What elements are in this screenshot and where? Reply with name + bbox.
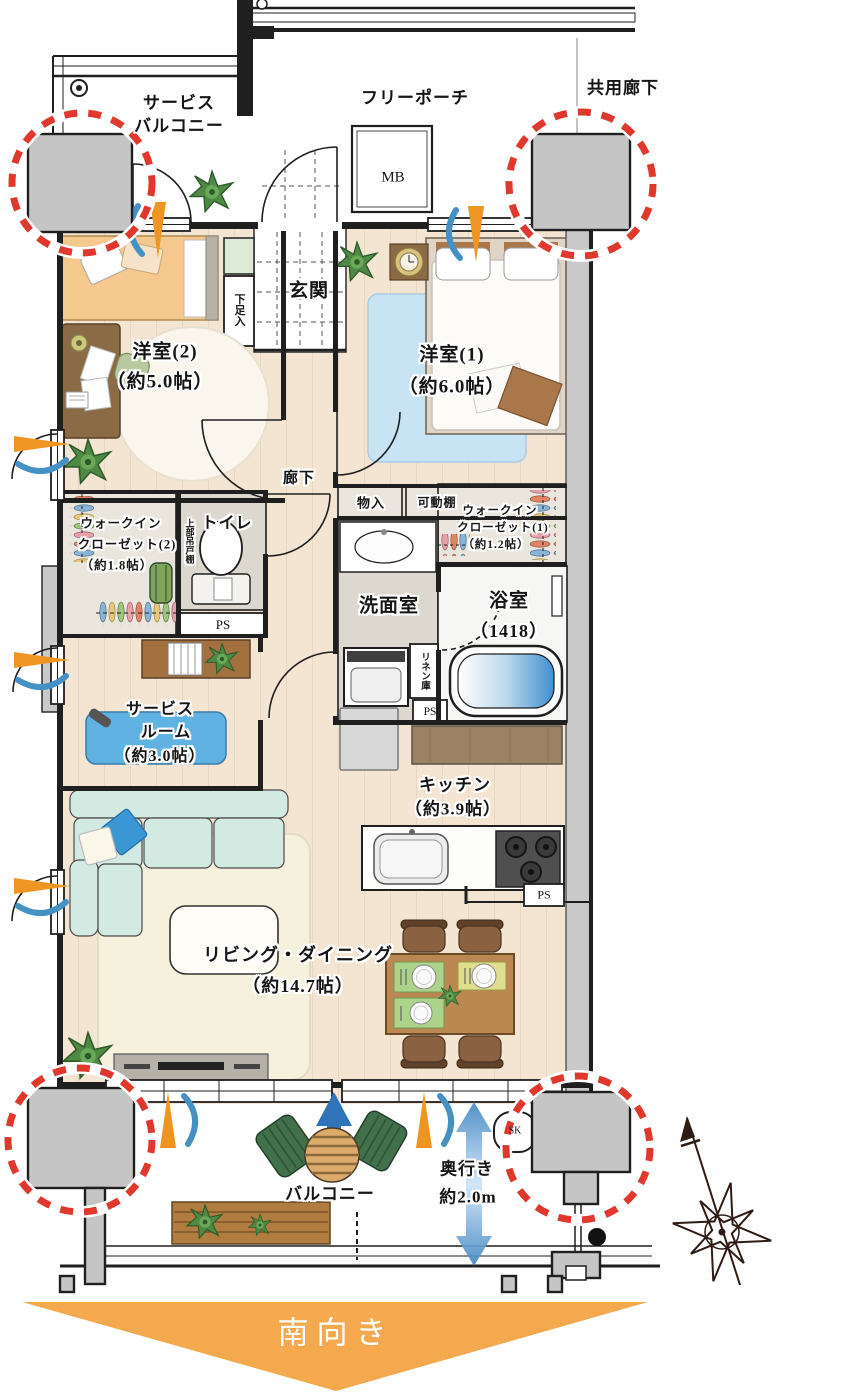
- balcony-label: バルコニー: [285, 1180, 375, 1205]
- washing-machine: [344, 648, 408, 706]
- ps-label: PS: [216, 617, 230, 633]
- shower-shelf: [552, 576, 562, 616]
- living-dining-label: リビング・ダイニング: [203, 941, 393, 967]
- balcony-depth-label: 奥行き: [440, 1155, 494, 1180]
- right-wall-band: [566, 228, 590, 1104]
- living-dining-size-label: （約14.7帖）: [242, 972, 354, 998]
- pillar: [532, 1092, 630, 1172]
- porch-side-wall: [237, 0, 253, 116]
- compass-icon: [673, 1116, 771, 1285]
- common-corridor-label: 共用廊下: [587, 74, 659, 99]
- vanity: [340, 522, 436, 572]
- movable-shelf-label: 可動棚: [417, 494, 456, 511]
- pillar: [28, 1088, 134, 1188]
- bathroom-label: 浴室: [489, 586, 529, 613]
- service-room-label: サービス: [126, 695, 194, 719]
- corridor-label: 廊下: [283, 467, 315, 488]
- free-porch-label: フリーポーチ: [361, 84, 469, 109]
- service-balcony-label: サービス: [143, 89, 215, 114]
- linen-cabinet-label: リネン庫: [417, 652, 431, 690]
- entrance-label: 玄関: [289, 276, 329, 303]
- wic2-label: クローゼット(2): [78, 534, 177, 553]
- shoe-cabinet-label: 下足入: [231, 294, 247, 327]
- bathtub: [450, 646, 562, 716]
- pillar: [28, 134, 132, 232]
- south-direction-label: 南向き: [278, 1308, 395, 1353]
- wic1-size-label: （約1.2帖）: [462, 536, 529, 552]
- bedroom1-size-label: （約6.0帖）: [399, 372, 506, 399]
- pillar: [532, 134, 630, 230]
- meter-box-label: MB: [381, 170, 404, 187]
- bedroom1-label: 洋室(1): [419, 340, 484, 367]
- back-counter: [412, 726, 562, 764]
- tv-board: [114, 1054, 268, 1080]
- service-balcony-label: バルコニー: [134, 112, 224, 137]
- service-room-size-label: （約3.0帖）: [114, 742, 205, 766]
- window: [51, 646, 64, 704]
- sk-label: SK: [509, 1126, 522, 1137]
- wic2-size-label: （約1.8帖）: [81, 555, 154, 574]
- wic2-label: ウォークイン: [80, 513, 161, 532]
- service-room-label: ルーム: [141, 718, 192, 742]
- ps-label: PS: [424, 706, 437, 718]
- toilet-label: トイレ: [201, 509, 252, 533]
- floor-plan: サービス バルコニー フリーポーチ 共用廊下 MB 玄関 下足入 洋室(2) （…: [0, 0, 850, 1393]
- bathroom-size-label: （1418）: [470, 617, 548, 643]
- kitchen-size-label: （約3.9帖）: [405, 795, 501, 820]
- upper-cabinet-label: 上部吊戸棚: [184, 519, 197, 564]
- shoe-cabinet-upper: [224, 238, 254, 274]
- bedroom2-label: 洋室(2): [132, 337, 197, 364]
- wic1-label: ウォークイン: [463, 502, 538, 518]
- storage-label: 物入: [357, 493, 385, 512]
- balcony-depth-label: 約2.0m: [439, 1183, 496, 1208]
- porch-tile-lines: [262, 150, 340, 220]
- plant-icon: [190, 171, 233, 211]
- ps-label: PS: [537, 888, 550, 903]
- refrigerator: [340, 708, 398, 770]
- wic1-label: クローゼット(1): [457, 519, 548, 535]
- washroom-label: 洗面室: [359, 591, 419, 618]
- kitchen-label: キッチン: [419, 771, 491, 796]
- balcony-table: [305, 1128, 359, 1182]
- bedroom2-size-label: （約5.0帖）: [107, 367, 214, 394]
- living-furniture: [70, 790, 310, 1080]
